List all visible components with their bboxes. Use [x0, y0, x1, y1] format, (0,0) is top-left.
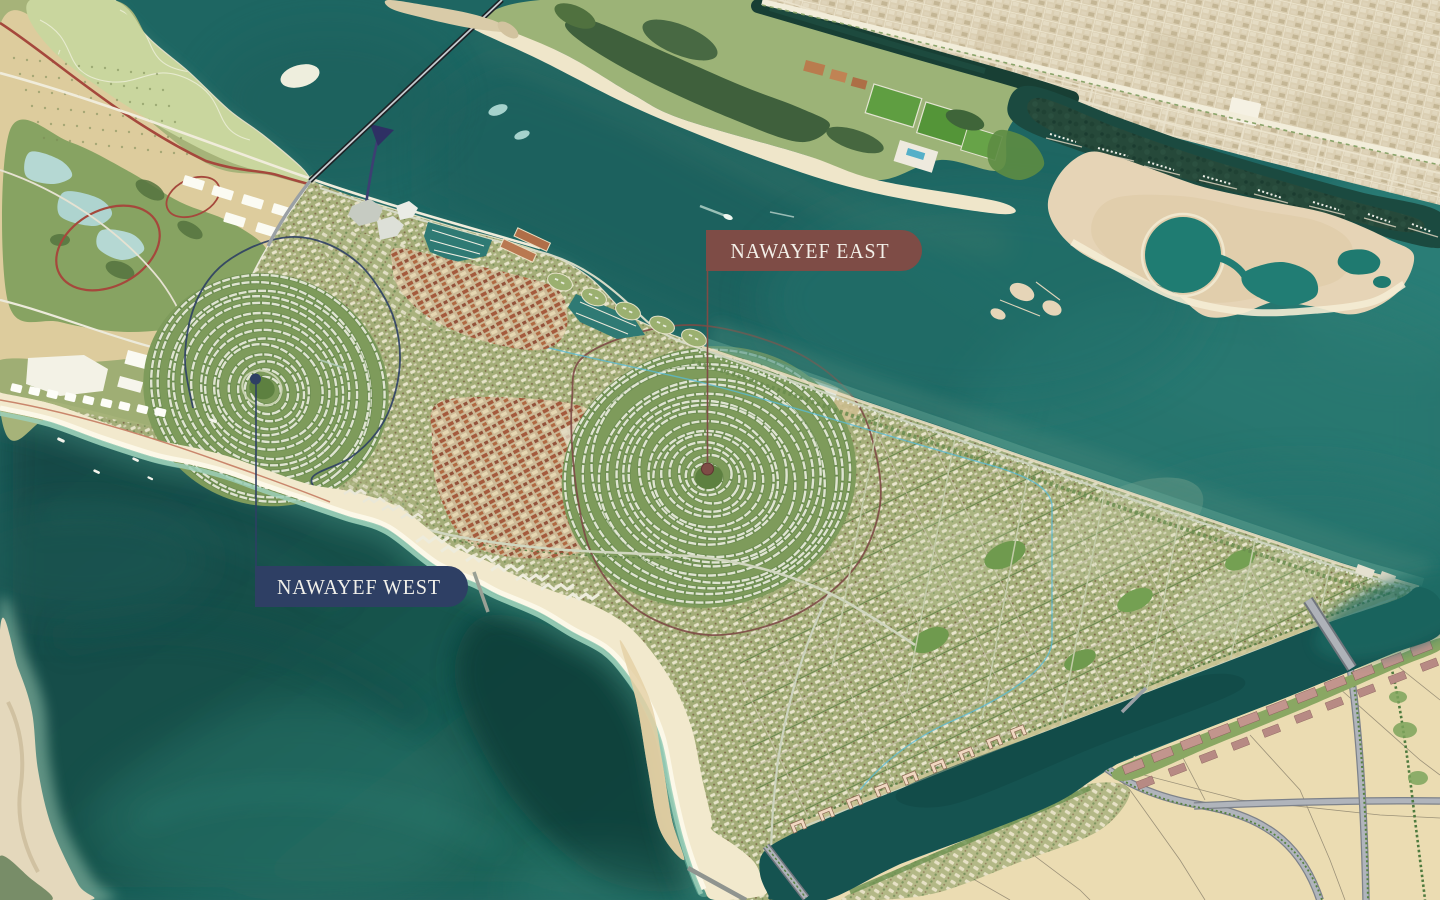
svg-text:NAWAYEF EAST: NAWAYEF EAST: [731, 239, 890, 263]
svg-text:NAWAYEF WEST: NAWAYEF WEST: [277, 575, 441, 599]
